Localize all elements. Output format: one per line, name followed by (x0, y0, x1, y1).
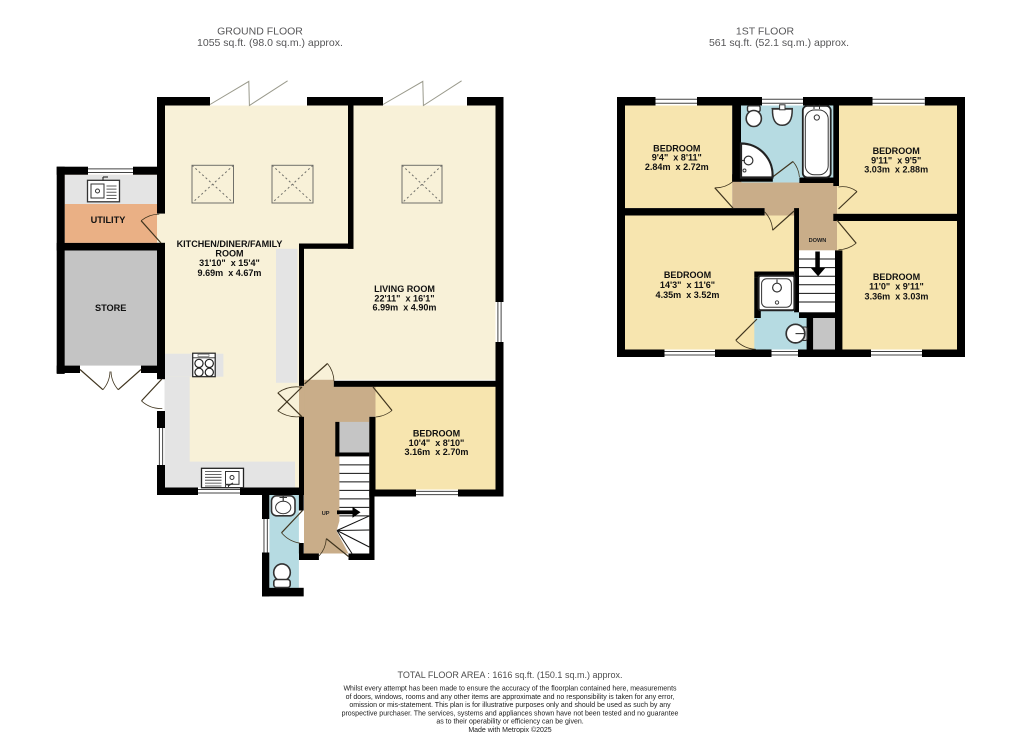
svg-text:3.16m x 2.70m: 3.16m x 2.70m (405, 447, 469, 457)
svg-text:1055 sq.ft. (98.0 sq.m.) appro: 1055 sq.ft. (98.0 sq.m.) approx. (197, 37, 343, 49)
svg-text:31'10" x 15'4": 31'10" x 15'4" (199, 258, 260, 268)
svg-text:prospective purchaser. The ser: prospective purchaser. The services, sys… (342, 710, 679, 717)
svg-text:3.03m x 2.88m: 3.03m x 2.88m (864, 165, 928, 175)
svg-text:BEDROOM: BEDROOM (664, 270, 711, 280)
svg-text:Made with Metropix ©2025: Made with Metropix ©2025 (468, 726, 551, 733)
svg-text:ROOM: ROOM (215, 249, 243, 259)
svg-text:UTILITY: UTILITY (91, 215, 126, 225)
svg-text:as to their operability or eff: as to their operability or efficiency ca… (436, 719, 583, 726)
svg-text:6.99m x 4.90m: 6.99m x 4.90m (373, 303, 437, 313)
svg-text:GROUND FLOOR: GROUND FLOOR (217, 26, 303, 38)
svg-text:STORE: STORE (95, 303, 126, 313)
svg-text:omission or mis-statement. Thi: omission or mis-statement. This plan is … (349, 702, 671, 709)
svg-text:TOTAL FLOOR AREA : 1616 sq.ft.: TOTAL FLOOR AREA : 1616 sq.ft. (150.1 sq… (398, 670, 623, 680)
svg-text:11'0" x 9'11": 11'0" x 9'11" (869, 282, 924, 292)
svg-text:14'3" x 11'6": 14'3" x 11'6" (660, 280, 715, 290)
svg-text:Whilst every attempt has been: Whilst every attempt has been made to en… (343, 686, 677, 693)
svg-text:2.84m x 2.72m: 2.84m x 2.72m (645, 162, 709, 172)
svg-text:9.69m x 4.67m: 9.69m x 4.67m (198, 268, 262, 278)
svg-text:of doors, windows, rooms and a: of doors, windows, rooms and any other i… (346, 694, 675, 701)
svg-text:4.35m x 3.52m: 4.35m x 3.52m (656, 290, 720, 300)
svg-text:DOWN: DOWN (809, 238, 827, 244)
svg-text:KITCHEN/DINER/FAMILY: KITCHEN/DINER/FAMILY (177, 239, 283, 249)
svg-text:UP: UP (322, 511, 330, 517)
svg-text:561 sq.ft. (52.1 sq.m.) approx: 561 sq.ft. (52.1 sq.m.) approx. (709, 37, 849, 49)
svg-text:1ST FLOOR: 1ST FLOOR (736, 26, 795, 38)
svg-text:3.36m x 3.03m: 3.36m x 3.03m (865, 292, 929, 302)
svg-text:BEDROOM: BEDROOM (873, 272, 920, 282)
